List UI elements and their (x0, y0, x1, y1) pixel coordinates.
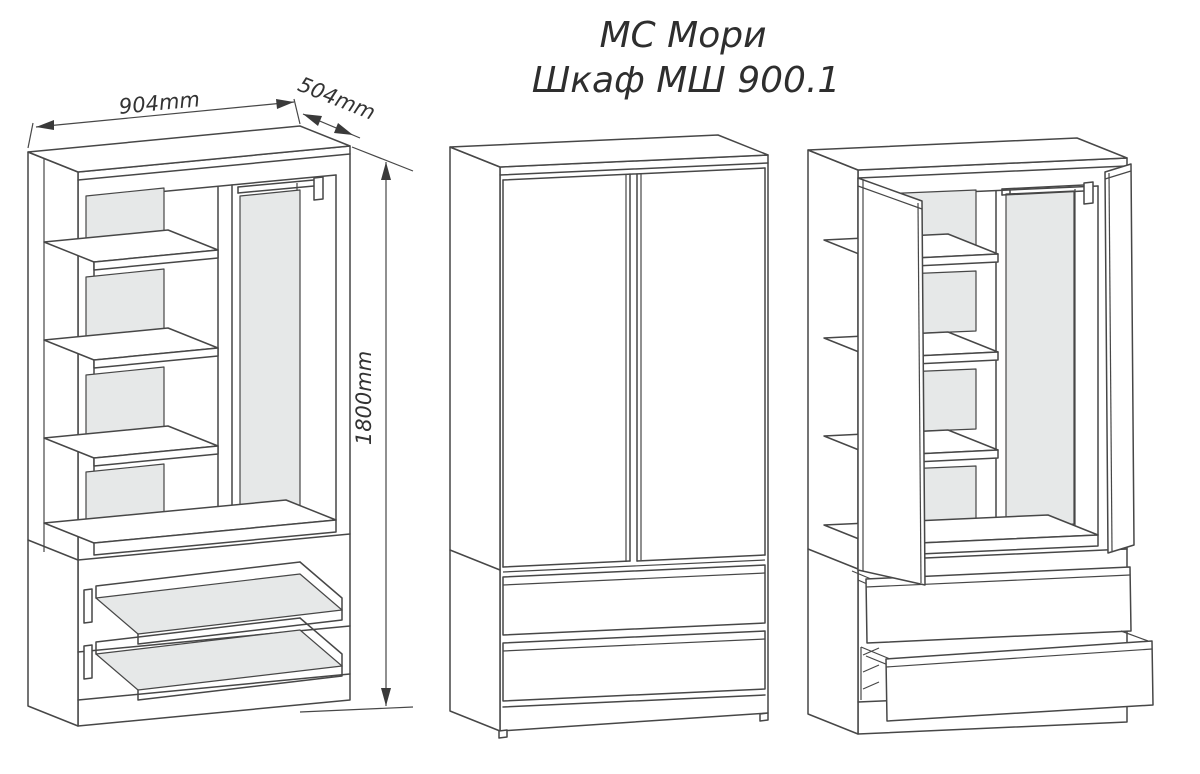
dim-arrow (36, 120, 54, 130)
extension-line (28, 123, 33, 148)
left-side-panel (450, 147, 500, 731)
back-panel (1006, 191, 1074, 527)
dim-arrow (381, 688, 391, 706)
dim-arrow (334, 123, 353, 135)
title-line-1: МС Мори (600, 15, 767, 56)
title-line-2: Шкаф МШ 900.1 (532, 60, 841, 101)
view-open (808, 138, 1153, 734)
dim-arrow (381, 162, 391, 180)
foot (499, 730, 507, 738)
dim-arrow (303, 114, 322, 126)
technical-drawing-page: МС Мори Шкаф МШ 900.1 (0, 0, 1200, 774)
view-interior-open (28, 126, 350, 726)
door-left-open (858, 178, 925, 585)
drawing-title: МС Мори Шкаф МШ 900.1 (532, 15, 841, 101)
view-closed (450, 135, 768, 738)
extension-line (352, 147, 413, 171)
back-panel (86, 269, 164, 339)
drawer-left-wall (84, 645, 92, 679)
back-panel (86, 367, 164, 437)
back-panel (240, 190, 300, 529)
extension-line (300, 707, 413, 712)
rod-bracket (314, 177, 323, 200)
rod-bracket (1084, 182, 1093, 204)
wardrobe-technical-drawing: МС Мори Шкаф МШ 900.1 (0, 0, 1200, 774)
dim-label-width: 904mm (118, 87, 201, 119)
drawer-left-wall (84, 589, 92, 623)
foot (760, 713, 768, 721)
dim-arrow (276, 99, 294, 109)
dim-label-height: 1800mm (352, 351, 376, 445)
door-right-open (1105, 164, 1134, 553)
extension-line (294, 99, 300, 124)
door-panel (858, 178, 925, 585)
